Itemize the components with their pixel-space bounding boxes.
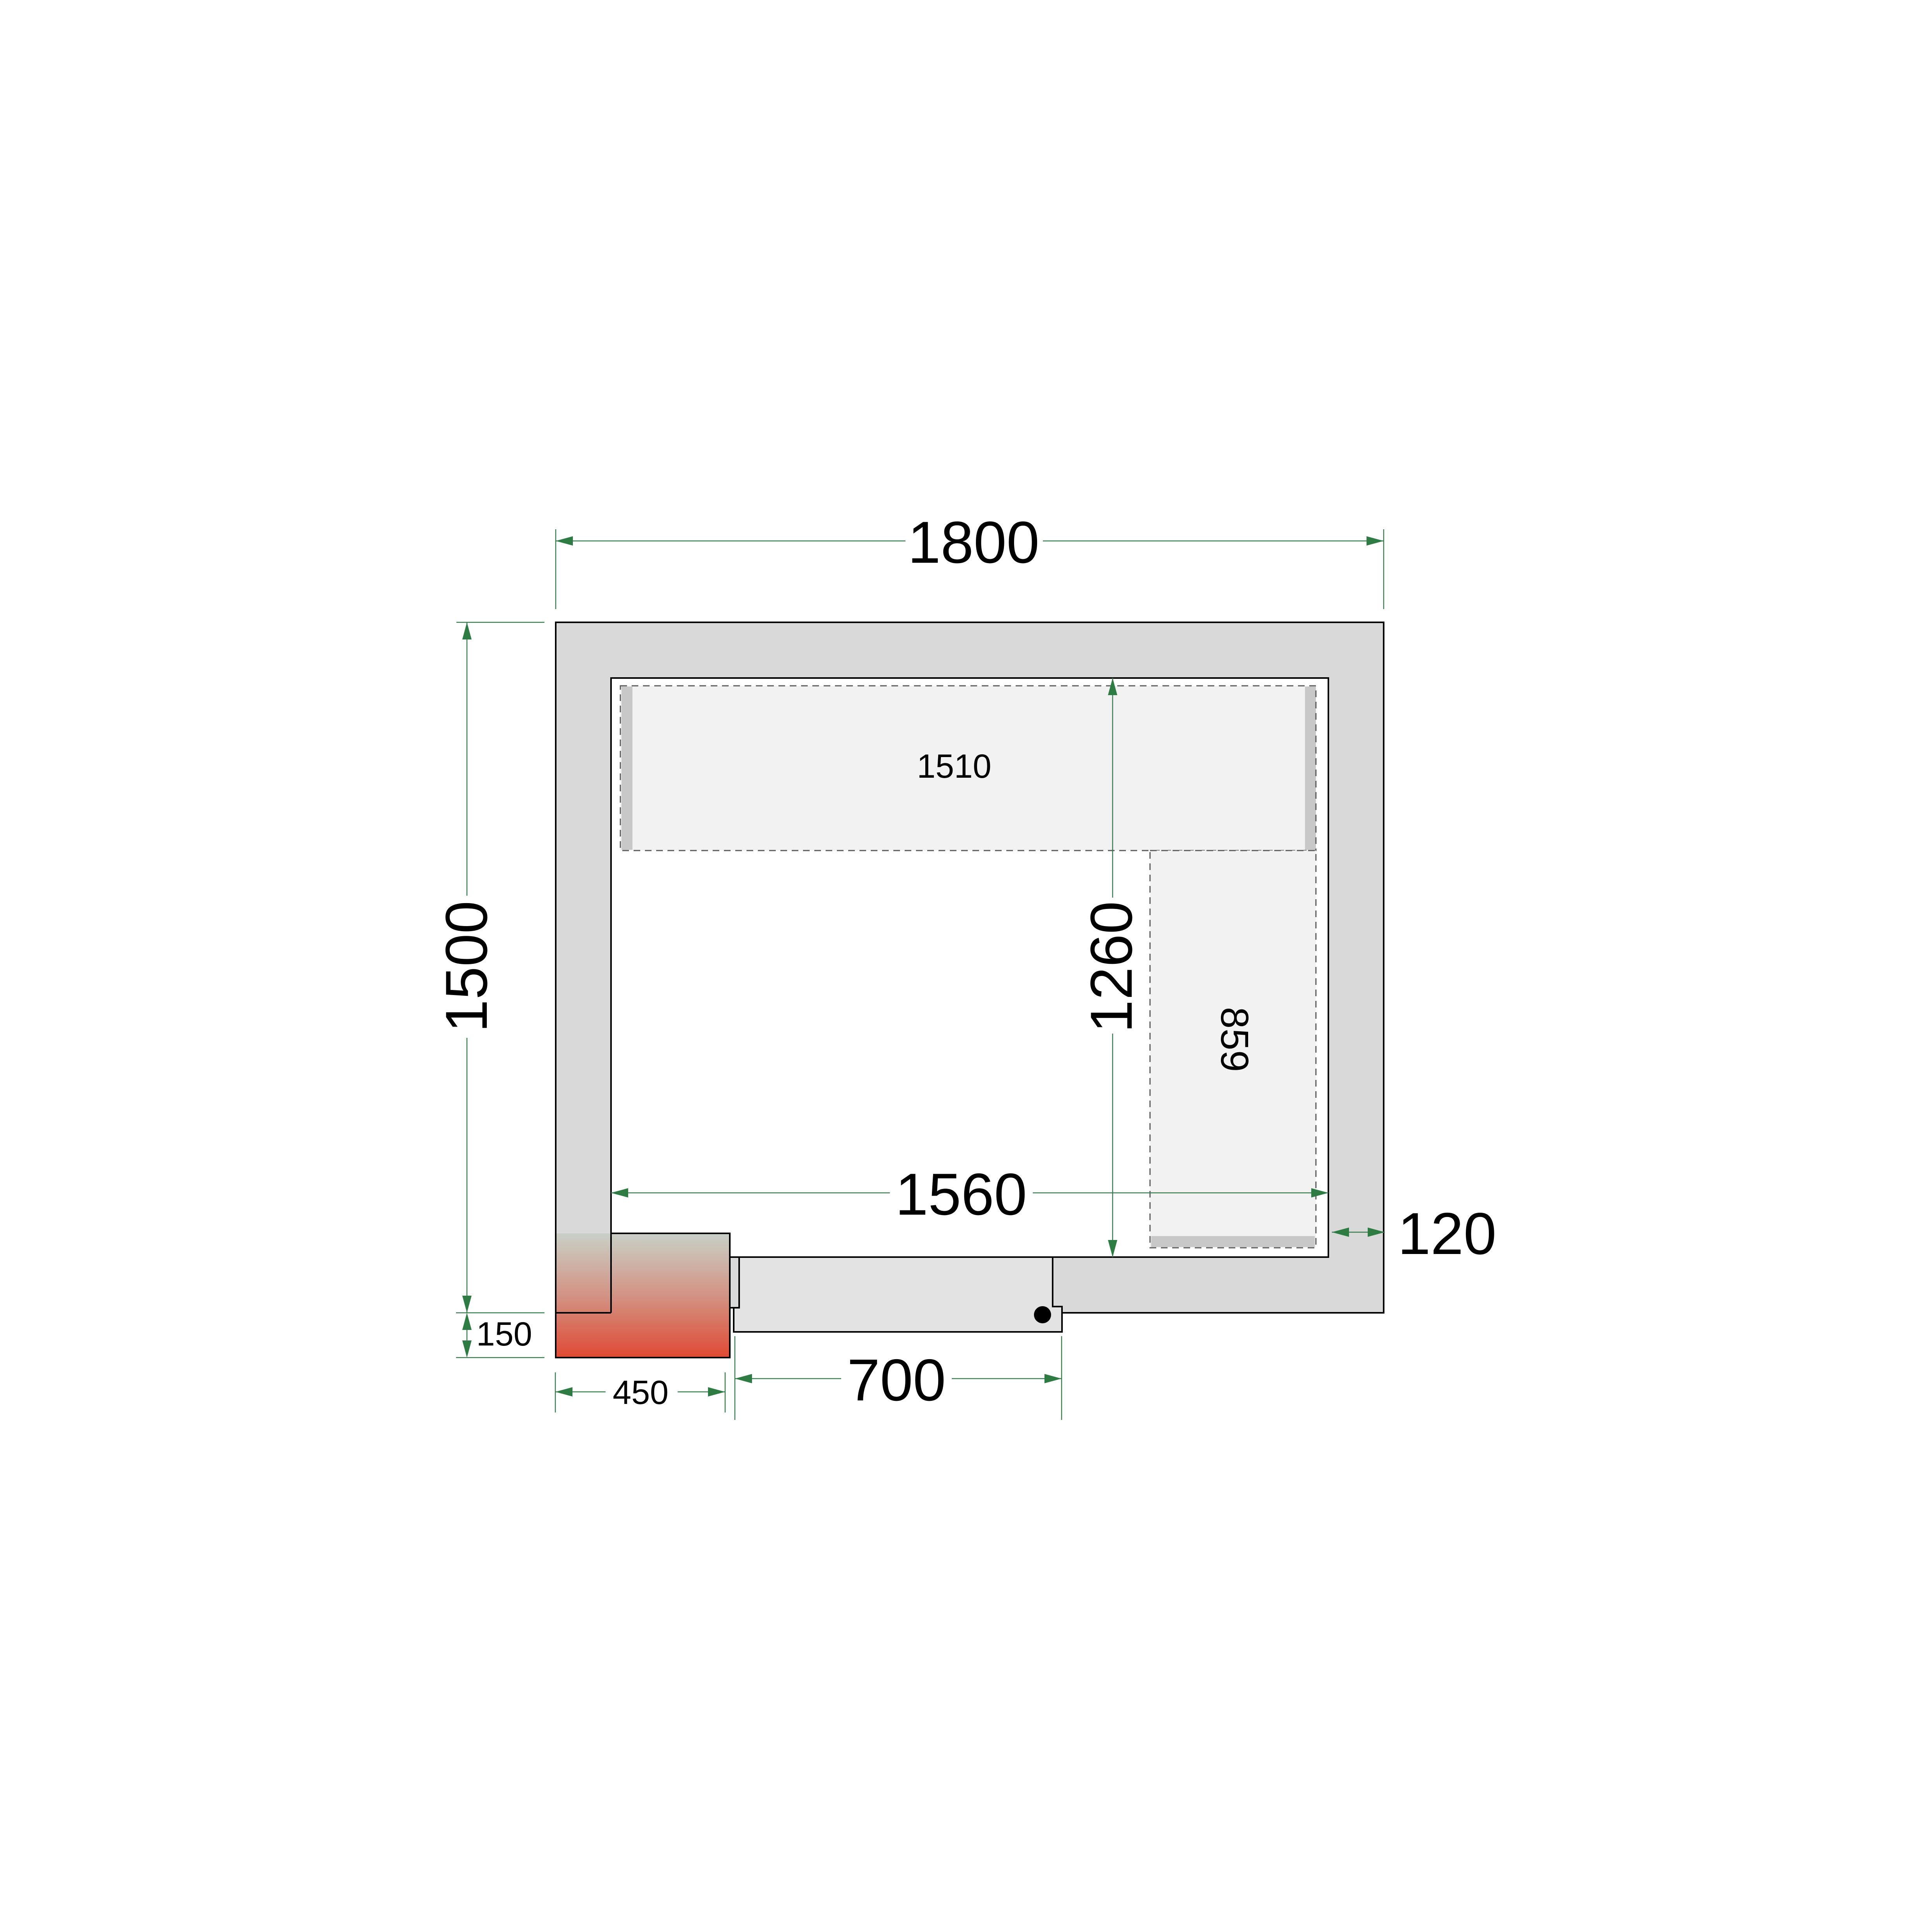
svg-text:700: 700	[847, 1347, 946, 1413]
svg-text:120: 120	[1398, 1201, 1497, 1267]
svg-text:450: 450	[613, 1374, 669, 1411]
svg-text:859: 859	[1213, 1007, 1256, 1072]
svg-text:1800: 1800	[908, 509, 1039, 576]
svg-text:1510: 1510	[917, 748, 991, 785]
svg-text:150: 150	[476, 1316, 532, 1353]
svg-text:1560: 1560	[895, 1161, 1027, 1228]
svg-text:1500: 1500	[433, 901, 500, 1032]
svg-text:1260: 1260	[1078, 901, 1145, 1033]
